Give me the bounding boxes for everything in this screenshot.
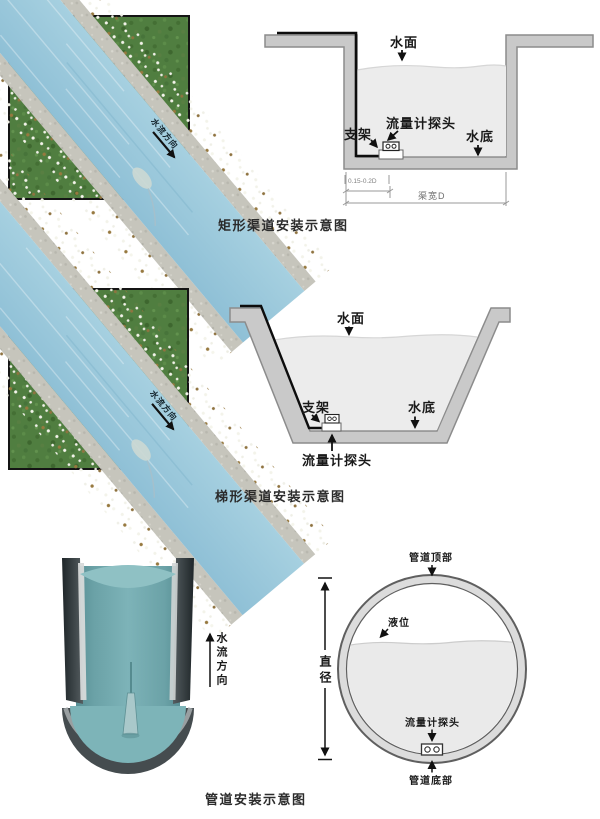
- rect-channel-photo: 水流方向: [8, 15, 190, 200]
- caption-rect-channel: 矩形渠道安装示意图: [218, 215, 349, 234]
- pipe-bottom-label: 管道底部: [409, 774, 453, 787]
- caption-trap-channel: 梯形渠道安装示意图: [215, 486, 346, 505]
- probe-eye-right: [392, 144, 396, 148]
- liquid-level-label: 液位: [388, 616, 410, 629]
- mount-bracket: [322, 423, 341, 431]
- pipe-3d-illustration: [50, 548, 240, 803]
- pipe-top-label: 管道顶部: [409, 551, 453, 564]
- probe-eye-right: [434, 747, 439, 752]
- bracket-label: 支架: [343, 127, 372, 142]
- mount-bracket: [379, 150, 403, 159]
- water-surface-label: 水面: [390, 35, 418, 50]
- probe-label: 流量计探头: [405, 716, 460, 729]
- probe-eye-right: [333, 417, 337, 421]
- water-surface-label: 水面: [337, 311, 365, 326]
- probe-eye-left: [386, 144, 390, 148]
- pipe-cross-section-diagram: 管道顶部 液位 流量计探头 管道底部: [310, 545, 555, 795]
- rect-channel-diagram: 水面 流量计探头 支架 水底 0.15-0.2D 渠宽D: [225, 25, 600, 215]
- flow-direction-label: 水流方向: [213, 632, 229, 688]
- probe-label: 流量计探头: [302, 453, 372, 468]
- caption-pipe: 管道安装示意图: [205, 789, 307, 808]
- offset-dimension-label: 0.15-0.2D: [348, 178, 377, 185]
- probe-box: [383, 142, 399, 151]
- probe-eye-left: [328, 417, 332, 421]
- trap-channel-diagram: 水面 支架 水底 流量计探头: [225, 300, 525, 475]
- probe-eye-left: [425, 747, 430, 752]
- diameter-label: 直径: [317, 655, 334, 687]
- bracket-label: 支架: [301, 400, 330, 415]
- trap-channel-photo: 水流方向: [8, 288, 189, 470]
- probe-label: 流量计探头: [386, 116, 456, 131]
- probe-box: [325, 415, 339, 424]
- width-dimension-label: 渠宽D: [418, 190, 446, 201]
- diagram-sheet: 水流方向 水面 流量计探头 支架 水底: [0, 0, 600, 819]
- water-bottom-label: 水底: [466, 129, 494, 144]
- probe-base-shadow: [122, 733, 140, 739]
- water-bottom-label: 水底: [408, 400, 436, 415]
